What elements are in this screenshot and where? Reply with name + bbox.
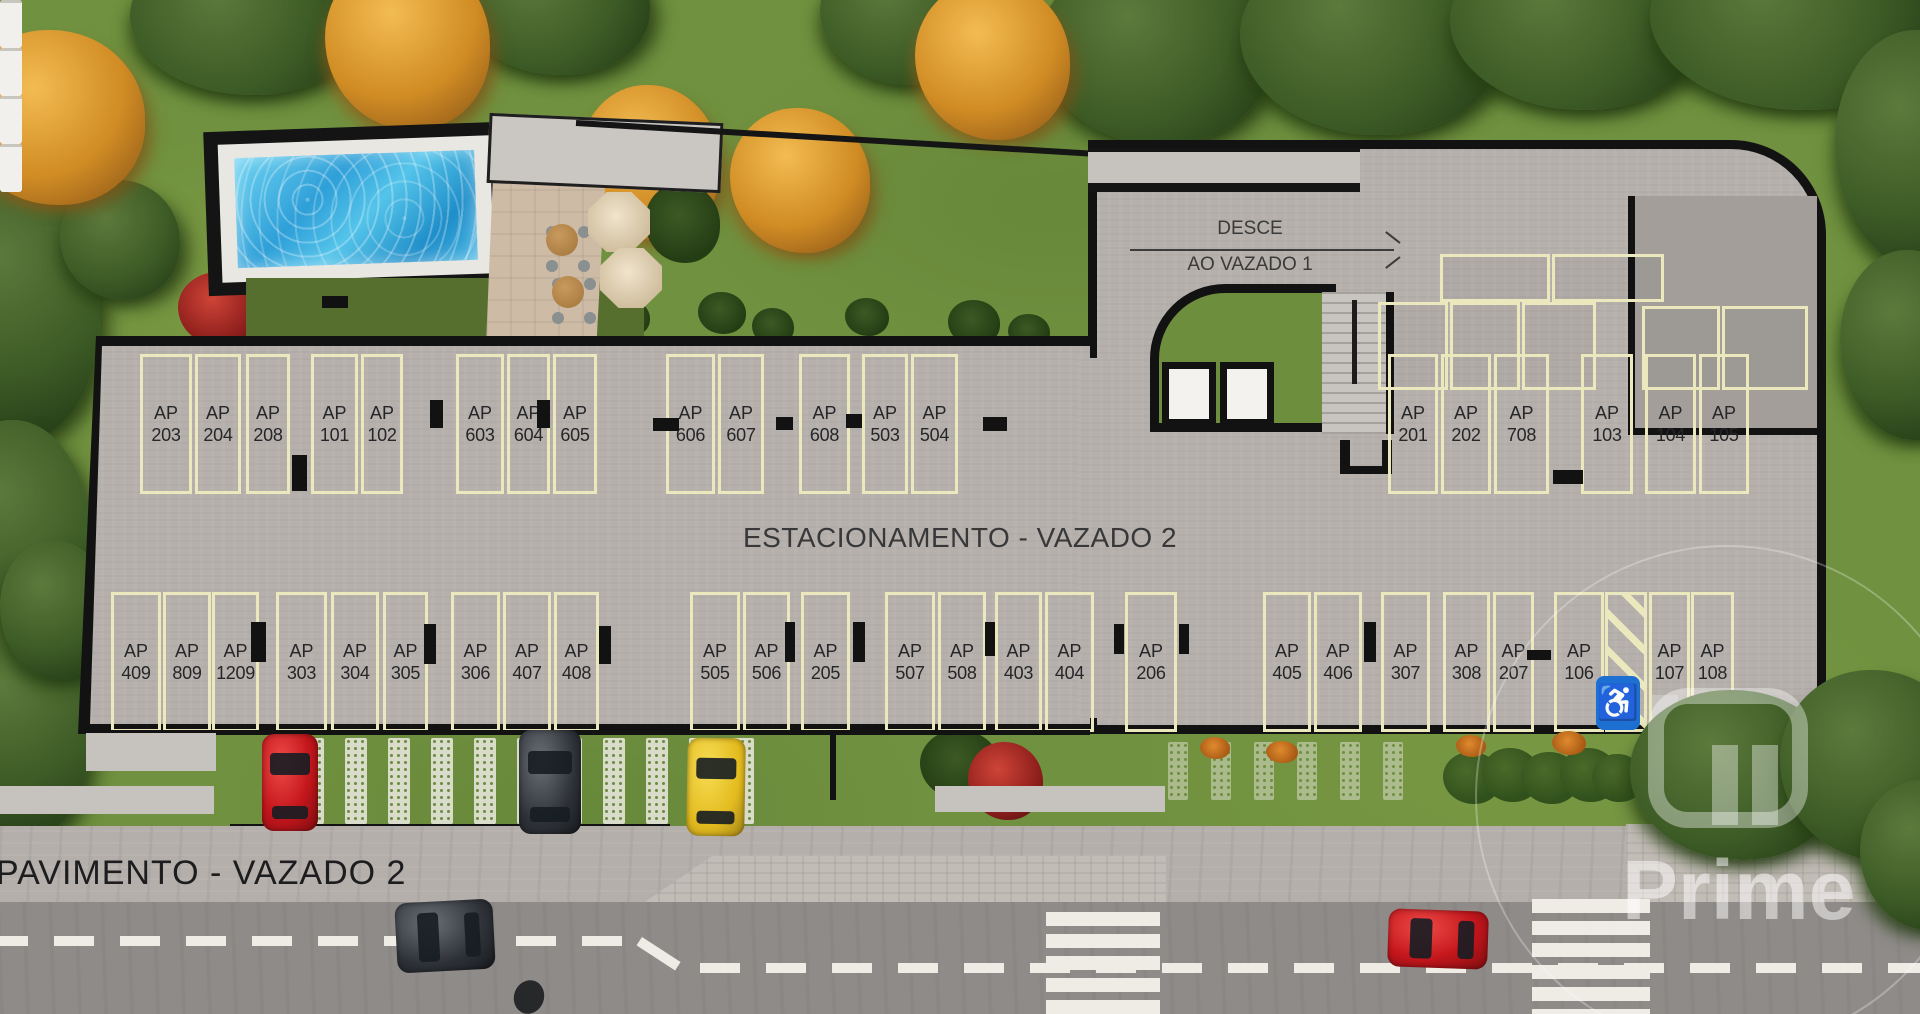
prime-logo-bar [1752,745,1778,825]
watermark-text: Prime [1622,842,1855,939]
orange-plant [1200,737,1230,759]
tree [1840,250,1920,440]
prime-logo-bar [1712,745,1738,825]
orange-plant [1266,741,1298,763]
site-plan: DESCE AO VAZADO 1 AP203AP204AP208AP101AP… [0,0,1920,1014]
tree [1835,30,1920,270]
